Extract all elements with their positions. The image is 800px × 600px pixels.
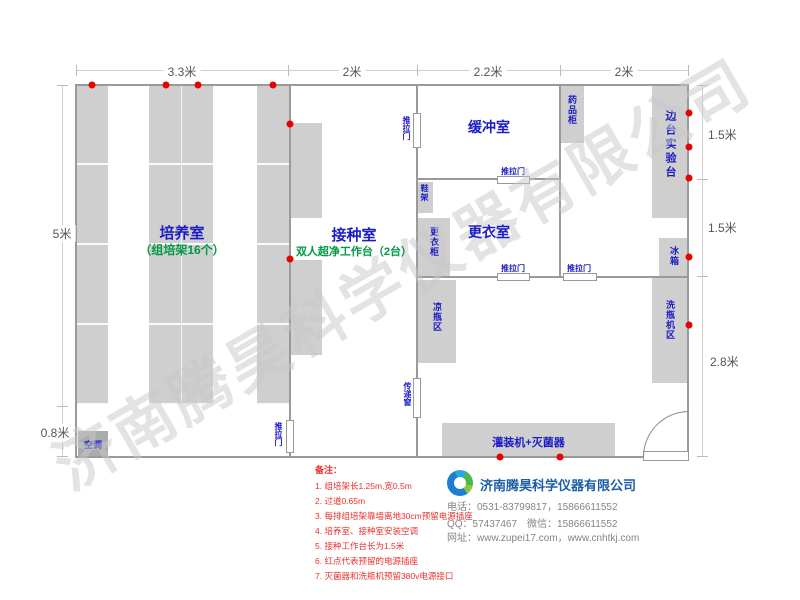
dim-tick bbox=[417, 65, 418, 76]
dim-tick bbox=[288, 65, 289, 76]
sliding-door-label: 推拉门 bbox=[567, 263, 591, 274]
shoe-rack-label: 鞋架 bbox=[420, 184, 428, 202]
wall-buffer-changing bbox=[417, 178, 560, 180]
note-item: 6. 红点代表预留的电源插座 bbox=[315, 554, 473, 569]
dim-tick bbox=[688, 65, 689, 76]
fridge-label: 冰箱 bbox=[669, 246, 678, 266]
room-cultivation-label: 培养室 bbox=[120, 222, 244, 243]
power-socket-dot bbox=[686, 110, 693, 117]
dim-top-4: 2米 bbox=[611, 63, 638, 80]
company-logo-icon bbox=[447, 470, 473, 496]
dim-tick bbox=[57, 406, 68, 407]
floorplan-canvas: 济南腾昊科学仪器有限公司 3.3米 2米 2.2米 2米 5米 0.8米 1.5… bbox=[0, 0, 800, 600]
wall-cultivation-inoculation bbox=[289, 85, 291, 457]
dim-line-right bbox=[702, 85, 703, 457]
culture-rack-column bbox=[76, 85, 108, 405]
dim-top-1: 3.3米 bbox=[164, 63, 201, 80]
power-socket-dot bbox=[557, 454, 564, 461]
dim-line-left bbox=[62, 85, 63, 457]
dim-top-3: 2.2米 bbox=[470, 63, 507, 80]
sliding-door-cultivation bbox=[286, 420, 294, 453]
sliding-door-buffer-bottom bbox=[497, 176, 530, 184]
culture-rack-column bbox=[257, 85, 289, 405]
wall-changing-bottomarea bbox=[417, 276, 688, 278]
dim-top-2: 2米 bbox=[339, 63, 366, 80]
room-inoculation-label: 接种室 bbox=[292, 224, 416, 245]
room-changing-label: 更衣室 bbox=[430, 222, 548, 242]
company-name: 济南腾昊科学仪器有限公司 bbox=[480, 475, 636, 494]
note-item: 7. 灭菌器和洗瓶机预留380v电源接口 bbox=[315, 569, 473, 584]
room-inoculation-sub: 双人超净工作台（2台） bbox=[296, 243, 412, 259]
dim-right-3: 2.8米 bbox=[706, 353, 743, 370]
dim-tick bbox=[697, 179, 708, 180]
sliding-door-changing bbox=[497, 273, 530, 281]
pass-through-window bbox=[413, 378, 421, 418]
air-conditioner-label: 空调 bbox=[78, 438, 108, 451]
wall-right bbox=[687, 84, 689, 458]
power-socket-dot bbox=[686, 254, 693, 261]
power-socket-dot bbox=[497, 454, 504, 461]
dim-tick bbox=[57, 456, 68, 457]
clean-bench bbox=[291, 123, 322, 218]
sliding-door-buffer bbox=[413, 113, 421, 148]
power-socket-dot bbox=[287, 256, 294, 263]
dim-tick bbox=[76, 65, 77, 76]
pass-through-window-label: 传递窗 bbox=[403, 382, 411, 406]
sliding-door-label: 推拉门 bbox=[501, 263, 525, 274]
sliding-door-label: 推拉门 bbox=[274, 422, 282, 446]
dim-tick bbox=[57, 85, 68, 86]
dim-tick bbox=[697, 85, 708, 86]
company-qq-wechat: QQ：57437467 微信：15866611552 bbox=[447, 515, 617, 530]
wall-buffer-sideroom bbox=[559, 85, 561, 278]
side-lab-bench-label: 边台实验台 bbox=[664, 110, 675, 180]
power-socket-dot bbox=[163, 82, 170, 89]
dim-left-1: 5米 bbox=[49, 225, 76, 242]
dim-tick bbox=[697, 456, 708, 457]
room-cultivation-sub: （组培架16个） bbox=[139, 241, 224, 258]
sliding-door-label: 推拉门 bbox=[501, 166, 525, 177]
dim-tick bbox=[560, 65, 561, 76]
power-socket-dot bbox=[686, 144, 693, 151]
power-socket-dot bbox=[195, 82, 202, 89]
bottle-cooling-label: 凉瓶区 bbox=[432, 302, 441, 332]
power-socket-dot bbox=[270, 82, 277, 89]
company-website: 网址：www.zupei17.com，www.cnhtkj.com bbox=[447, 529, 639, 544]
dim-right-1: 1.5米 bbox=[704, 126, 741, 143]
entrance-door-swing-arc bbox=[643, 411, 689, 457]
clean-bench bbox=[291, 260, 322, 355]
room-buffer-label: 缓冲室 bbox=[430, 117, 548, 137]
dim-right-2: 1.5米 bbox=[704, 219, 741, 236]
power-socket-dot bbox=[89, 82, 96, 89]
filling-machine-label: 灌装机+灭菌器 bbox=[442, 434, 615, 450]
sliding-door-label: 推拉门 bbox=[402, 116, 410, 140]
bottle-washer-label: 洗瓶机区 bbox=[665, 300, 674, 340]
power-socket-dot bbox=[287, 121, 294, 128]
dim-left-2: 0.8米 bbox=[37, 424, 74, 441]
wall-left bbox=[75, 84, 77, 458]
sliding-door-sideroom bbox=[563, 273, 597, 281]
power-socket-dot bbox=[686, 175, 693, 182]
power-socket-dot bbox=[686, 322, 693, 329]
company-phone: 电话：0531-83799817，15866611552 bbox=[447, 498, 618, 513]
dim-tick bbox=[697, 276, 708, 277]
medicine-cabinet-label: 药品柜 bbox=[567, 95, 576, 125]
